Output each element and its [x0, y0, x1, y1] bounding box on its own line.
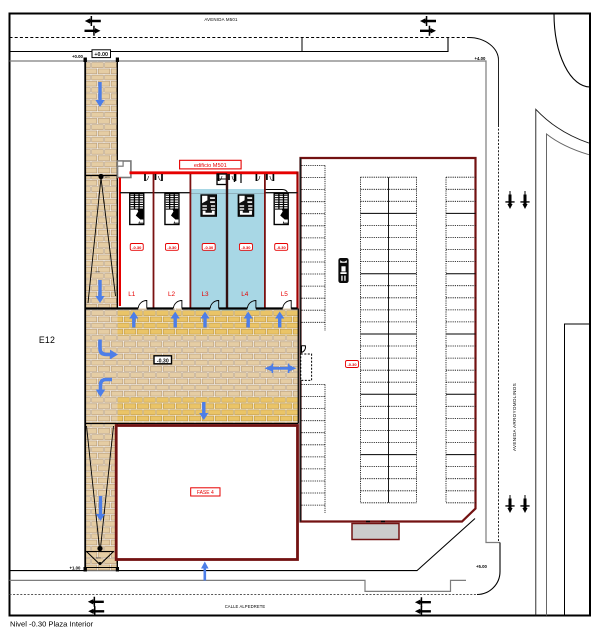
svg-text:+4.00: +4.00 [475, 56, 486, 61]
svg-text:edificio M501: edificio M501 [194, 163, 227, 169]
svg-text:+5.00: +5.00 [476, 564, 487, 569]
svg-text:wm: wm [96, 556, 101, 560]
svg-text:+0.00: +0.00 [94, 52, 108, 58]
svg-text:-0.30: -0.30 [167, 245, 177, 250]
svg-text:wm: wm [96, 270, 101, 274]
svg-text:L3: L3 [201, 291, 209, 298]
svg-text:L5: L5 [281, 291, 289, 298]
svg-text:-0.30: -0.30 [277, 245, 287, 250]
svg-text:AVENIDA M501: AVENIDA M501 [204, 17, 238, 22]
svg-text:L2: L2 [168, 291, 176, 298]
svg-text:AVENIDA ARROYOMOLINOS: AVENIDA ARROYOMOLINOS [512, 383, 517, 451]
svg-text:L1: L1 [128, 291, 136, 298]
svg-text:-0.30: -0.30 [157, 358, 169, 364]
svg-text:FASE 4: FASE 4 [197, 490, 214, 496]
svg-text:wm: wm [105, 175, 110, 179]
svg-text:-0.30: -0.30 [241, 245, 251, 250]
svg-text:Nivel -0.30 Plaza Interior: Nivel -0.30 Plaza Interior [10, 620, 94, 629]
svg-text:+0.00: +0.00 [72, 54, 83, 59]
svg-text:-0.30: -0.30 [347, 362, 357, 367]
svg-text:CALLE ALPEDRETE: CALLE ALPEDRETE [225, 604, 266, 609]
svg-text:-0.30: -0.30 [132, 245, 142, 250]
svg-text:+1.00: +1.00 [70, 566, 81, 571]
svg-text:L4: L4 [241, 291, 249, 298]
svg-text:-0.30: -0.30 [204, 245, 214, 250]
svg-text:E12: E12 [39, 335, 55, 345]
